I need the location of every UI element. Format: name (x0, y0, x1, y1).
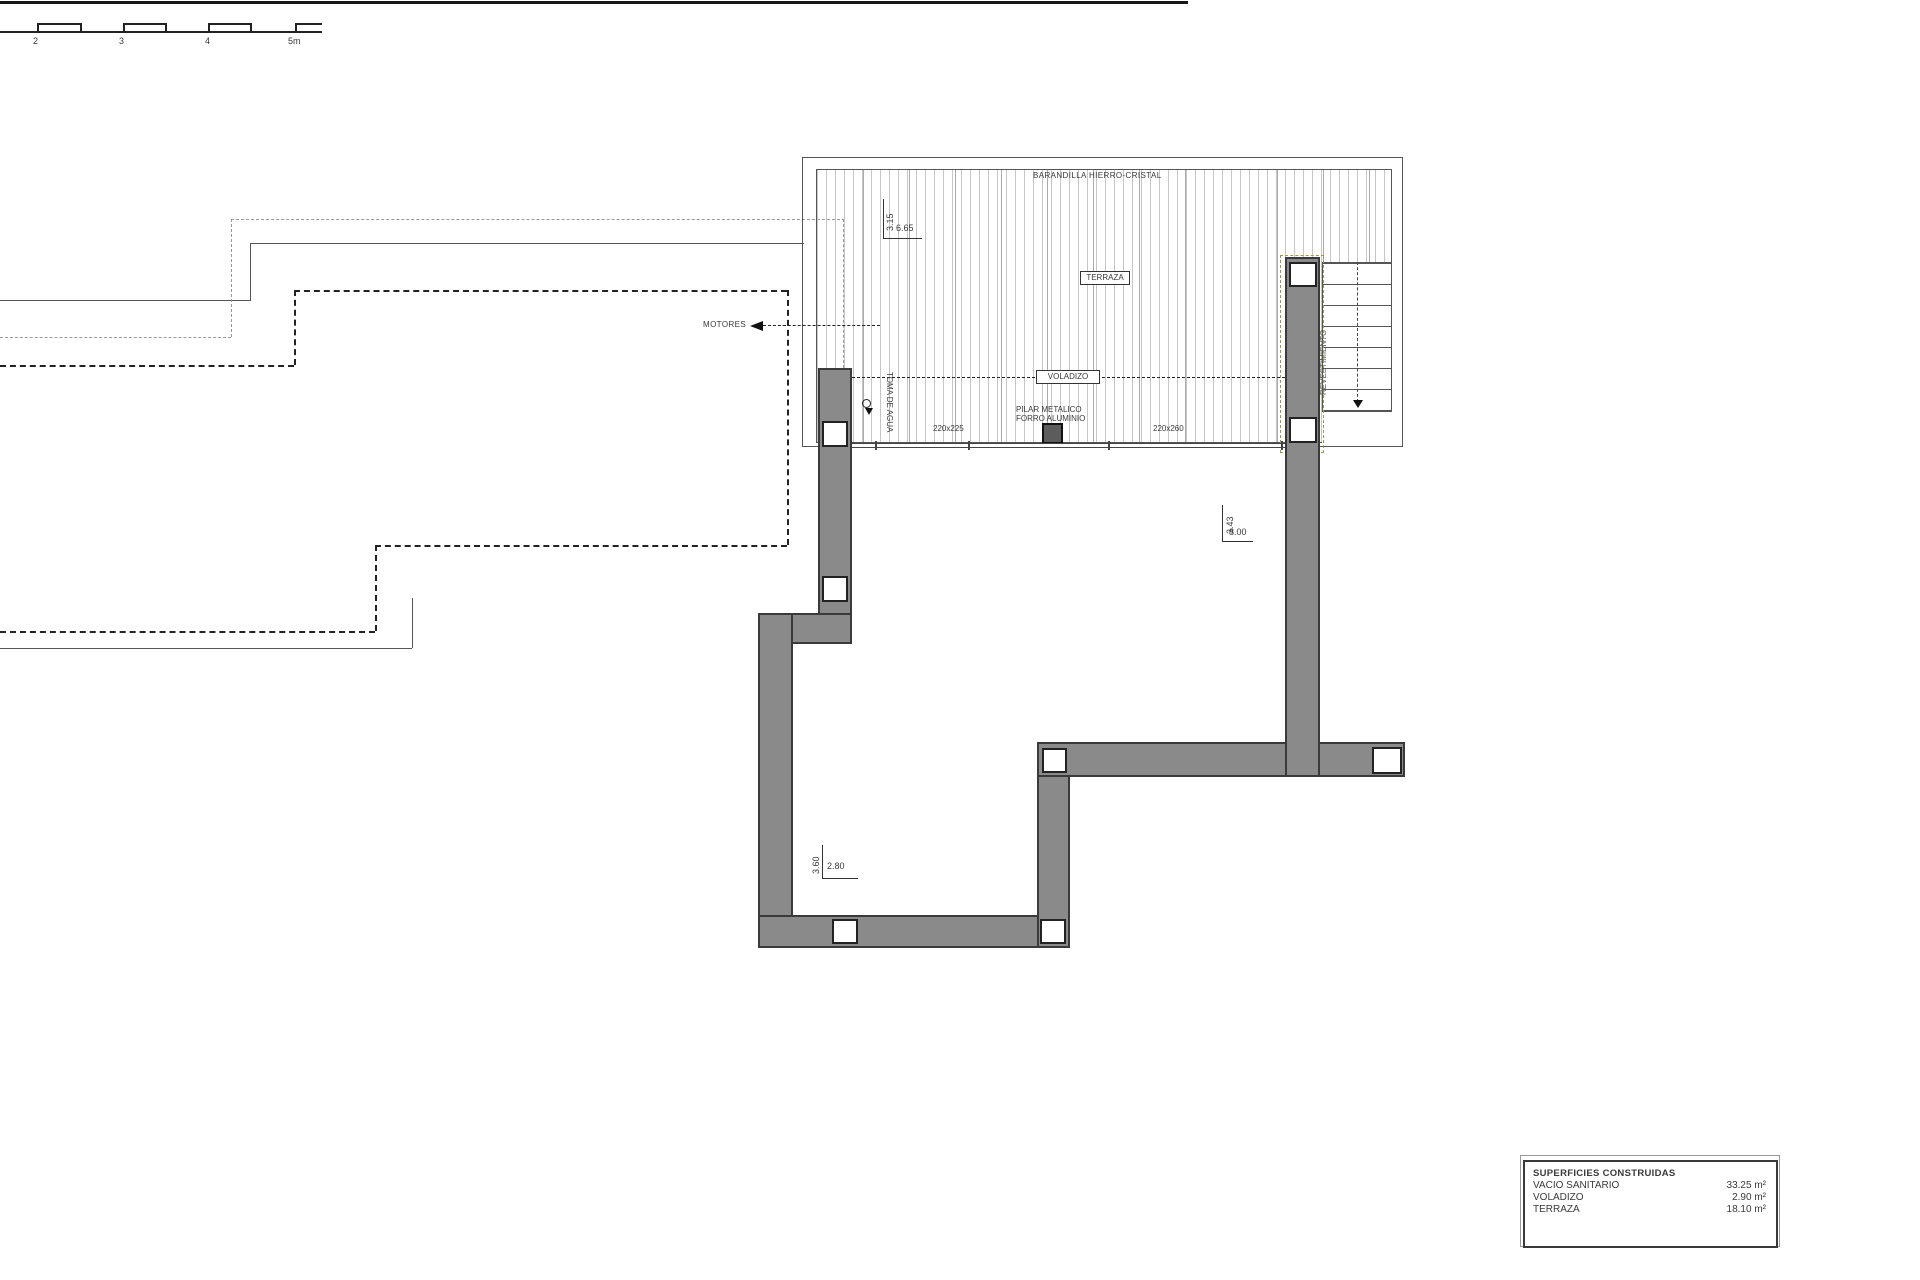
dim-lower-vline (822, 845, 823, 878)
upper-floor-outline-left-h (0, 300, 251, 301)
gray-dashed-left-v (231, 219, 232, 337)
black-dashed-top (294, 290, 787, 292)
stair-direction-arrow-icon (1353, 400, 1363, 408)
dim-220x225-label: 220x225 (933, 425, 964, 433)
legend-row-value: 18.10 m² (1727, 1205, 1766, 1215)
pilar-label-line2: FORRO ALUMINIO (1016, 415, 1085, 423)
motores-arrow-icon (750, 321, 763, 331)
scale-bar-segment (37, 23, 82, 31)
glazing-mullion (1281, 441, 1283, 450)
black-dashed-left-h (0, 365, 294, 367)
scale-tick-label: 2 (33, 37, 38, 46)
wall-lower-left (758, 613, 793, 948)
dim-lower-hline (822, 878, 858, 879)
wall-opening (832, 919, 858, 944)
motores-leader-line (763, 325, 880, 326)
dim-upper-vline (1222, 505, 1223, 541)
wall-upper-left (818, 368, 852, 644)
legend-row-name: VOLADIZO (1533, 1193, 1584, 1203)
upper-floor-outline-bottom-v (412, 598, 413, 648)
scale-bar-segment (295, 23, 322, 31)
scale-bar-segment (208, 23, 252, 31)
legend-row-name: TERRAZA (1533, 1205, 1580, 1215)
dim-220x260-label: 220x260 (1153, 425, 1184, 433)
scale-bar-baseline (0, 31, 322, 33)
glazing-mullion (875, 441, 877, 450)
legend-title: SUPERFICIES CONSTRUIDAS (1533, 1169, 1676, 1179)
gray-dashed-left-h (0, 337, 231, 338)
upper-floor-outline-left (250, 243, 251, 301)
glazing-mullion (968, 441, 970, 450)
legend-box: SUPERFICIES CONSTRUIDAS VACIO SANITARIO … (1523, 1160, 1778, 1248)
dim-lower-h-label: 2.80 (827, 862, 845, 871)
metal-pillar (1042, 423, 1063, 444)
water-tap-arrow-icon (865, 408, 873, 415)
glazing-mullion (1108, 441, 1110, 450)
upper-floor-outline-top (250, 243, 804, 244)
scale-tick-label: 5m (288, 37, 301, 46)
glazing-line (852, 443, 1285, 448)
scale-tick-label: 3 (119, 37, 124, 46)
dim-terrace-v-label: 3.15 (886, 213, 895, 231)
wall-opening (822, 421, 848, 447)
terraza-label: TERRAZA (1080, 271, 1130, 285)
scale-bar-segment (123, 23, 167, 31)
black-dashed-right-v (787, 290, 789, 545)
dim-upper-h-label: 8.00 (1229, 528, 1247, 537)
dim-lower-v-label: 3.60 (812, 856, 821, 874)
wall-opening (1040, 919, 1066, 944)
dim-terrace-vline (883, 199, 884, 238)
legend-row-value: 33.25 m² (1727, 1181, 1766, 1191)
dim-upper-hline (1222, 541, 1253, 542)
wall-opening (1042, 748, 1067, 773)
wall-mid-horizontal (1037, 742, 1405, 777)
black-dashed-bottom-h (0, 631, 375, 633)
wall-opening (1372, 747, 1402, 774)
upper-floor-outline-bottom (0, 648, 412, 649)
toma-de-agua-label: TOMA DE AGUA (885, 372, 893, 432)
gray-dashed-top (231, 219, 845, 220)
dim-terrace-hline (883, 238, 922, 239)
stair-center-line (1357, 262, 1358, 402)
water-tap-icon (862, 399, 871, 408)
stair-landing (1322, 412, 1392, 443)
pilar-label-line1: PILAR METALICO (1016, 406, 1082, 414)
wall-opening (1289, 417, 1317, 443)
wall-right-vertical (1285, 257, 1320, 777)
black-dashed-step-v (375, 545, 377, 631)
sheet-top-edge (0, 1, 1188, 4)
wall-opening (1289, 262, 1317, 287)
black-dashed-mid-h (375, 545, 787, 547)
floor-plan-sheet: 2 3 4 5m BARANDILLA HIERRO-CRISTAL 3.15 … (0, 0, 1920, 1280)
motores-label: MOTORES (703, 321, 746, 329)
wall-opening (822, 576, 848, 602)
dim-terrace-h-label: 6.65 (896, 224, 914, 233)
barandilla-label: BARANDILLA HIERRO-CRISTAL (1033, 172, 1162, 180)
scale-tick-label: 4 (205, 37, 210, 46)
voladizo-label: VOLADIZO (1036, 370, 1100, 384)
legend-row-name: VACIO SANITARIO (1533, 1181, 1619, 1191)
legend-row-value: 2.90 m² (1732, 1193, 1766, 1203)
wall-bottom (758, 915, 1070, 948)
black-dashed-left-v (294, 290, 296, 365)
